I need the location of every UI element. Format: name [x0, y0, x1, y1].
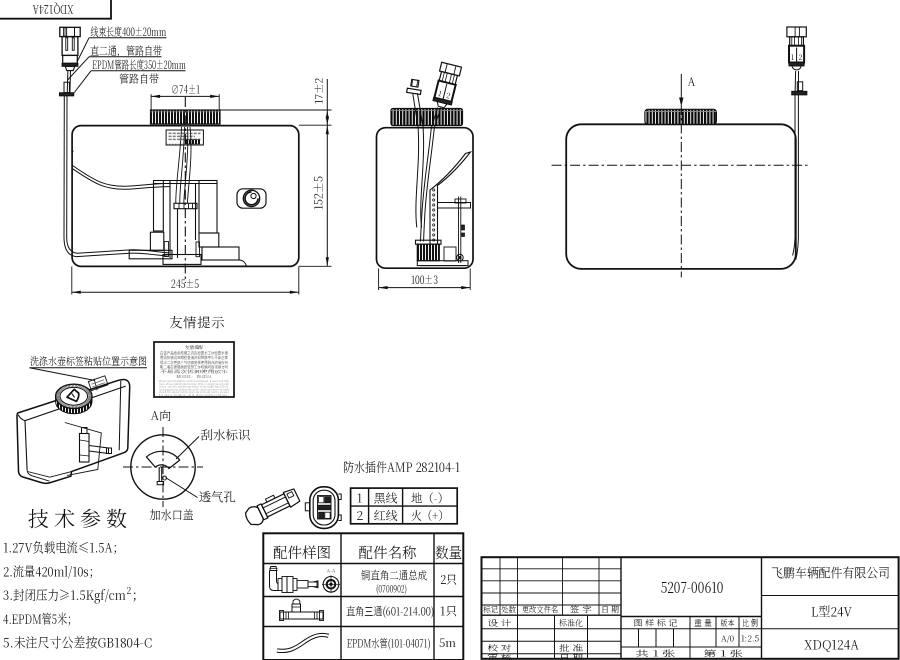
- svg-text:第 1 张: 第 1 张: [703, 648, 744, 660]
- svg-text:友情提示: 友情提示: [169, 312, 225, 332]
- svg-text:共 1 张: 共 1 张: [636, 648, 677, 660]
- svg-text:1: 1: [791, 52, 795, 63]
- svg-text:XDQ124A: XDQ124A: [32, 1, 73, 19]
- svg-text:3.封闭压力≥1.5Kgf/cm: 3.封闭压力≥1.5Kgf/cm: [3, 584, 126, 604]
- svg-text:版本: 版本: [721, 617, 736, 629]
- svg-text:2: 2: [356, 507, 363, 524]
- svg-text:配件样图: 配件样图: [273, 542, 331, 563]
- svg-text:17±2: 17±2: [312, 77, 327, 104]
- svg-text:；: ；: [132, 584, 146, 604]
- svg-text:152±5: 152±5: [311, 176, 327, 210]
- svg-text:红线: 红线: [374, 507, 398, 524]
- svg-text:1: 1: [357, 489, 363, 506]
- svg-text:日 期: 日 期: [559, 651, 584, 660]
- svg-text:(0700902): (0700902): [376, 582, 407, 597]
- svg-text:EPDM水管(101-04071): EPDM水管(101-04071): [347, 636, 431, 652]
- svg-text:日 期: 日 期: [601, 604, 620, 616]
- svg-text:A/0: A/0: [721, 633, 734, 645]
- svg-text:L型24V: L型24V: [811, 601, 852, 621]
- svg-text:更改文件名: 更改文件名: [521, 604, 558, 616]
- svg-text:管路自带: 管路自带: [119, 71, 159, 87]
- svg-text:处数: 处数: [501, 604, 517, 616]
- svg-text:2.流量420ml/10s；: 2.流量420ml/10s；: [3, 561, 100, 581]
- svg-text:标准化: 标准化: [558, 617, 583, 629]
- svg-text:标记: 标记: [482, 604, 498, 616]
- svg-text:黑线: 黑线: [374, 489, 398, 506]
- svg-text:2只: 2只: [440, 571, 457, 588]
- svg-text:5.未注尺寸公差按GB1804-C: 5.未注尺寸公差按GB1804-C: [3, 632, 152, 652]
- svg-text:比 例: 比 例: [742, 617, 758, 629]
- svg-text:5m: 5m: [439, 635, 457, 651]
- svg-text:245±5: 245±5: [171, 276, 199, 292]
- svg-text:4.EPDM管5米；: 4.EPDM管5米；: [3, 608, 77, 628]
- svg-text:to use water-old disconnection: to use water-old disconnection.: [159, 392, 229, 397]
- svg-text:A-A: A-A: [327, 568, 336, 575]
- svg-text:设 计: 设 计: [488, 617, 513, 629]
- svg-text:5207-00610: 5207-00610: [661, 576, 724, 598]
- svg-text:防水插件AMP 282104-1: 防水插件AMP 282104-1: [343, 457, 460, 476]
- svg-text:数量: 数量: [435, 542, 462, 563]
- svg-text:A: A: [688, 74, 696, 90]
- svg-text:飞鹏车辆配件有限公司: 飞鹏车辆配件有限公司: [771, 563, 890, 582]
- svg-text:签 字: 签 字: [570, 604, 592, 616]
- svg-text:洗涤水壶标签粘贴位置示意图: 洗涤水壶标签粘贴位置示意图: [30, 354, 147, 369]
- svg-text:1只: 1只: [440, 603, 457, 620]
- svg-text:刮水标识: 刮水标识: [201, 426, 251, 444]
- svg-text:直角三通(601-214.00): 直角三通(601-214.00): [346, 604, 434, 620]
- svg-text:地（-）: 地（-）: [411, 489, 449, 506]
- svg-text:∅74±1: ∅74±1: [171, 82, 200, 98]
- svg-text:图 样 标 记: 图 样 标 记: [634, 617, 678, 629]
- svg-text:A向: A向: [151, 407, 172, 424]
- svg-text:1.27V负载电流≤1.5A；: 1.27V负载电流≤1.5A；: [3, 537, 124, 557]
- svg-text:1:2.5: 1:2.5: [741, 633, 760, 645]
- svg-text:配件名称: 配件名称: [359, 542, 417, 563]
- svg-text:重 量: 重 量: [694, 617, 712, 629]
- svg-text:火（+）: 火（+）: [411, 507, 449, 524]
- svg-text:2: 2: [799, 52, 804, 63]
- svg-text:审 核: 审 核: [488, 651, 512, 660]
- svg-text:透气孔: 透气孔: [199, 488, 236, 506]
- svg-text:技术参数: 技术参数: [28, 504, 132, 534]
- svg-text:1: 1: [437, 88, 443, 100]
- svg-text:加水口盖: 加水口盖: [150, 506, 194, 524]
- svg-text:XDQ124A: XDQ124A: [804, 634, 859, 654]
- svg-text:100±3: 100±3: [411, 272, 438, 288]
